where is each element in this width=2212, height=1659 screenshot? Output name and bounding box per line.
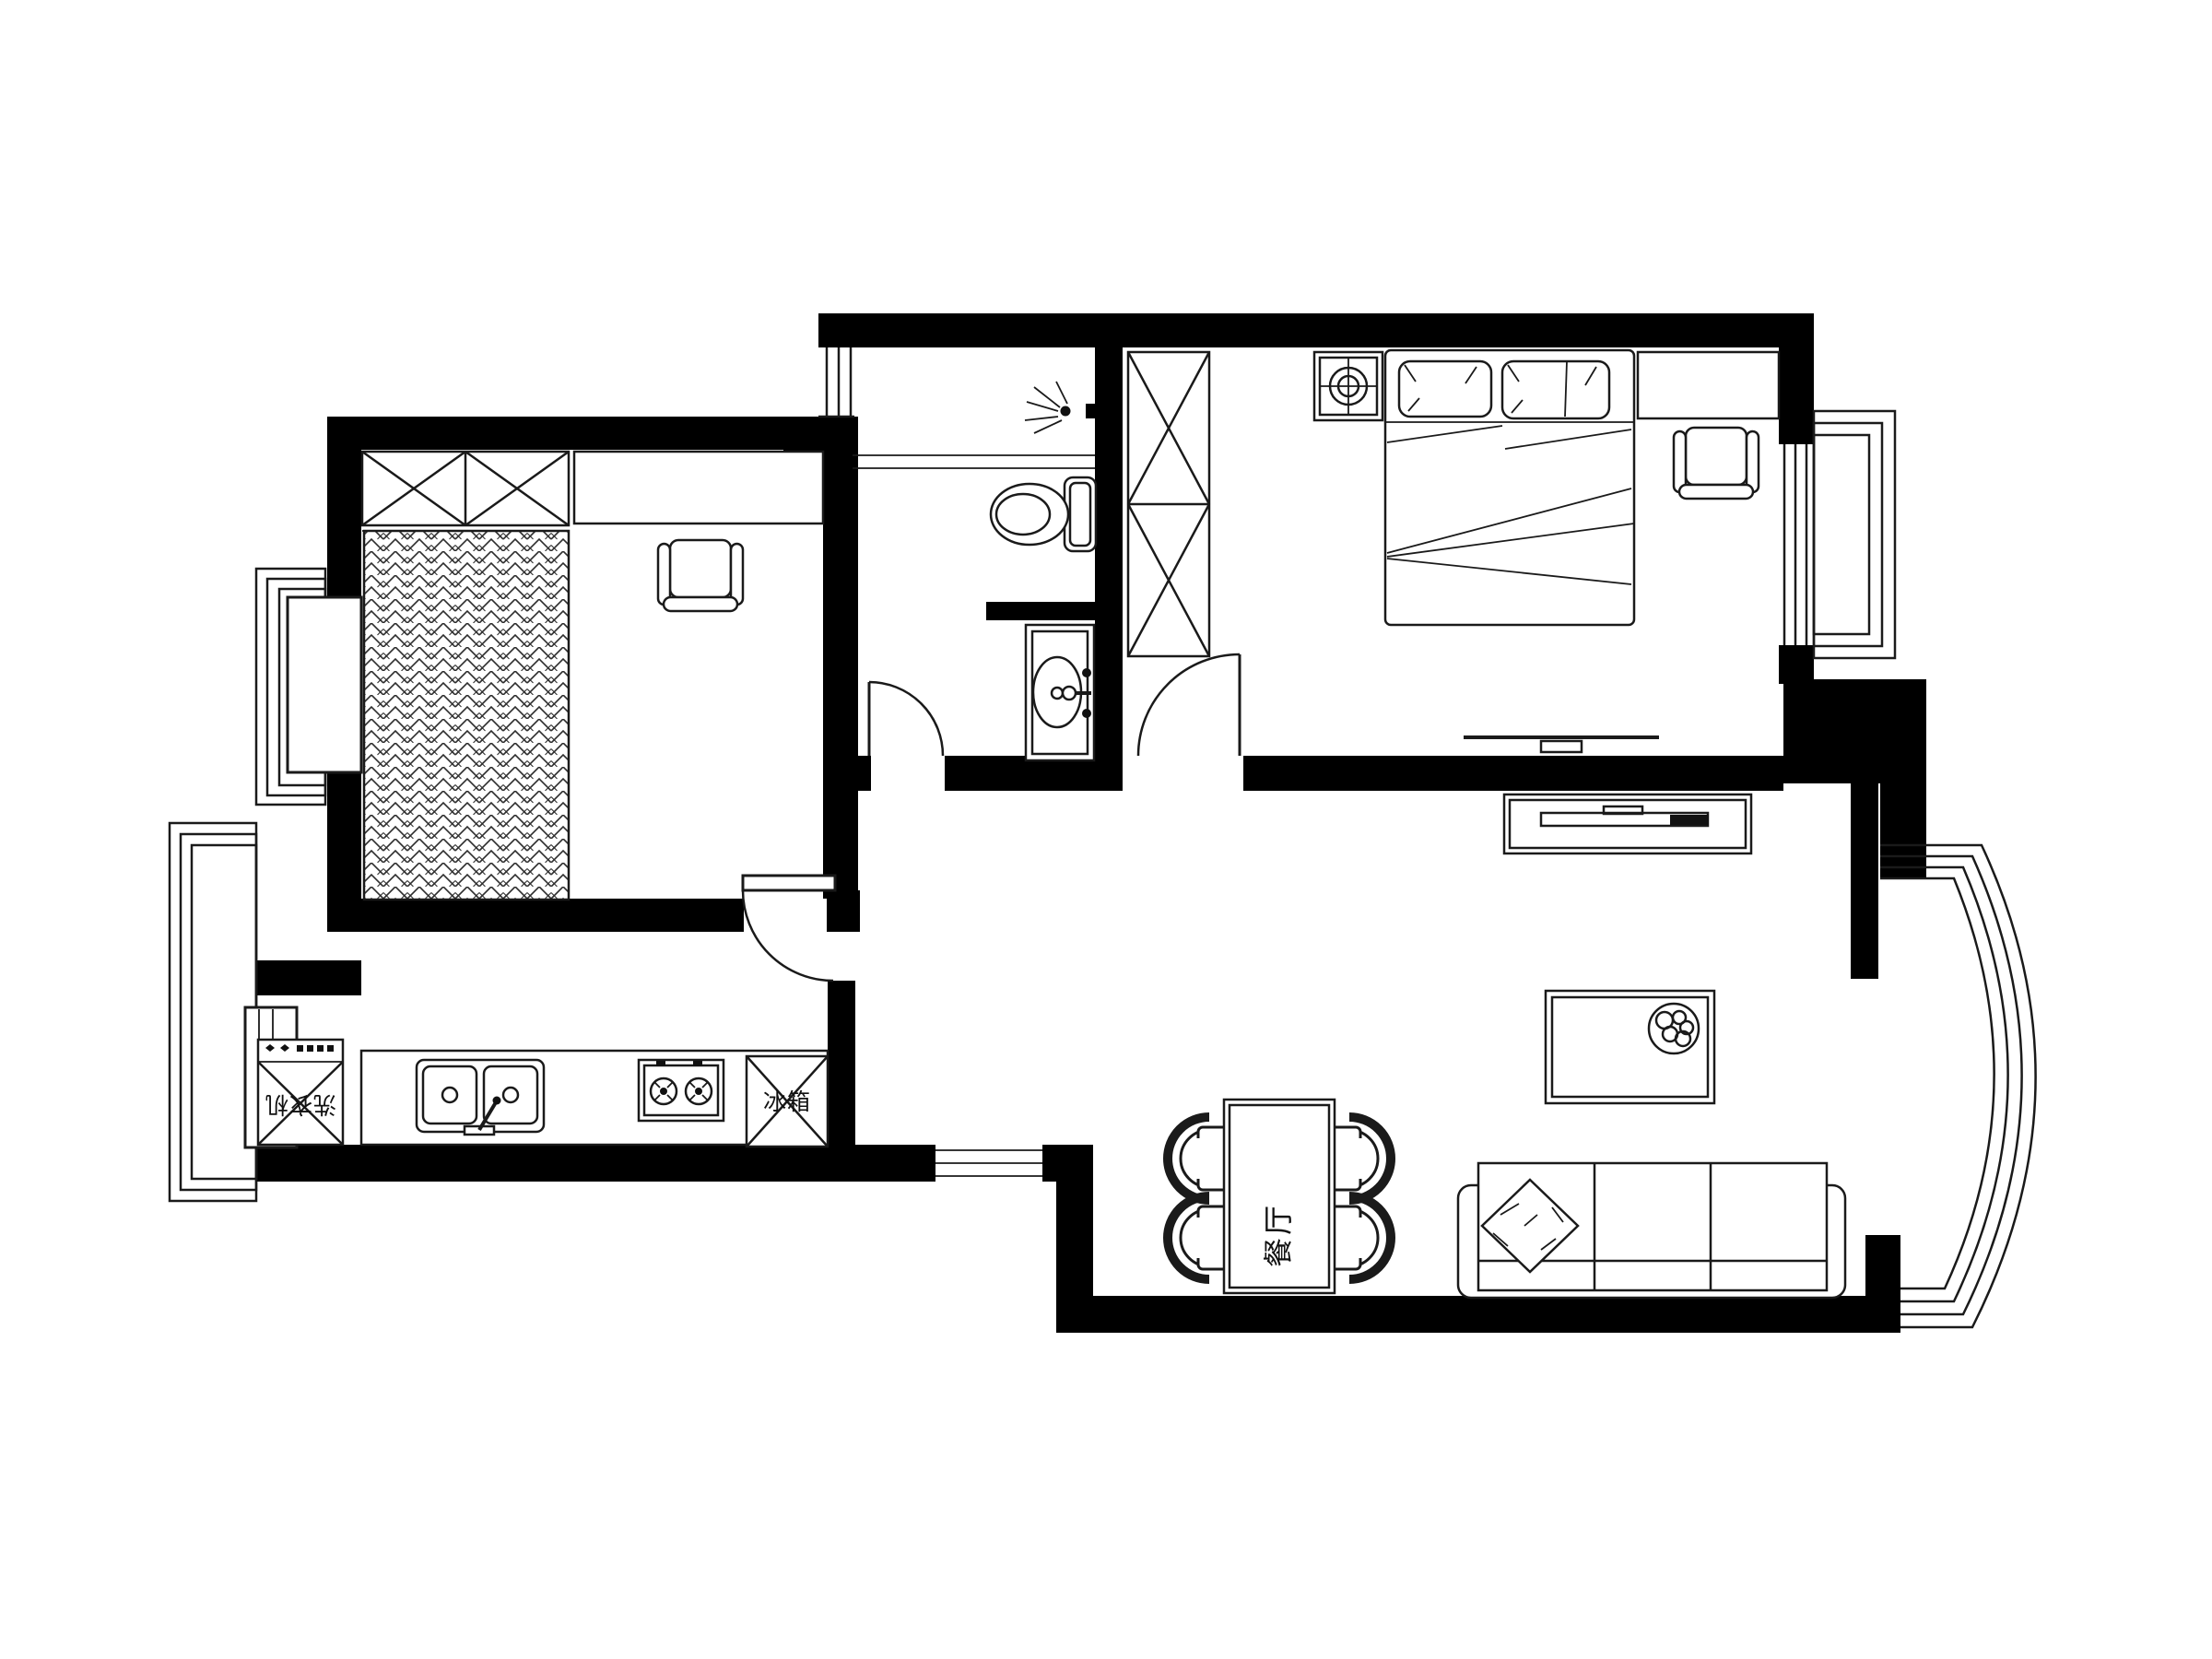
nightstand-lamp	[1314, 352, 1382, 420]
wall-room2-top	[327, 417, 858, 450]
floor-plan-drawing: 餐厅 洗衣机	[0, 0, 2212, 1659]
wall-bath-right	[1095, 347, 1123, 772]
wall-bath-bottom-left	[823, 756, 871, 791]
room2-bay-window	[256, 569, 361, 805]
wall-living-bottom	[1056, 1296, 1900, 1333]
wall-kitchen-step	[256, 960, 361, 995]
living-bay-window	[1880, 845, 2036, 1327]
room-kitchen: 洗衣机 冰箱	[258, 1040, 828, 1147]
toilet	[991, 477, 1096, 551]
wall-room2-left-upper	[327, 417, 361, 599]
wall-entry-corner	[1042, 1145, 1093, 1182]
wall-room2-bottom	[327, 899, 744, 932]
wall-master-right-lower	[1779, 645, 1814, 684]
wardrobe-master	[1128, 352, 1209, 656]
sofa	[1458, 1163, 1845, 1298]
fridge: 冰箱	[747, 1056, 828, 1147]
shower-head-icon	[1025, 382, 1097, 433]
bathroom-door	[869, 682, 943, 756]
washing-machine-label: 洗衣机	[265, 1091, 336, 1118]
wardrobe-second-bedroom	[362, 452, 569, 531]
room-second-bedroom	[362, 452, 823, 900]
wall-bath-stub	[986, 602, 1095, 620]
desk-second-bedroom	[574, 452, 823, 524]
shower-partition	[853, 455, 1095, 468]
entry-opening	[935, 1145, 1042, 1182]
kitchen-sink	[417, 1060, 544, 1135]
tatami-bed	[364, 531, 569, 900]
dining-set: 餐厅	[1168, 1100, 1391, 1293]
wall-master-bottom	[1243, 756, 1783, 791]
vanity-sink	[1026, 625, 1094, 760]
washing-machine: 洗衣机	[258, 1040, 343, 1145]
wall-tv-master	[1464, 737, 1659, 752]
gas-stove	[639, 1060, 724, 1121]
kitchen-door	[743, 876, 835, 981]
wall-master-right-upper	[1779, 313, 1814, 444]
wall-se-corner-b	[1880, 783, 1926, 877]
chair-master	[1674, 428, 1759, 499]
doors	[743, 654, 1240, 981]
wall-top	[818, 313, 1814, 347]
wall-living-right-bar	[1851, 783, 1878, 979]
floor-plan-page: 餐厅 洗衣机	[0, 0, 2212, 1659]
room-bathroom	[853, 382, 1097, 760]
wall-se-corner-a	[1783, 679, 1926, 783]
room-master-bedroom	[1128, 350, 1779, 752]
desk-master	[1638, 352, 1779, 418]
wall-kitchen-right	[828, 981, 855, 1147]
wall-room2-right	[823, 417, 858, 899]
wall-step-vertical	[1056, 1182, 1093, 1301]
master-bedroom-door	[1138, 654, 1240, 756]
bath-window	[818, 347, 854, 417]
fridge-label: 冰箱	[763, 1088, 811, 1115]
dining-room-label: 餐厅	[1261, 1203, 1296, 1267]
wall-corner-block	[827, 890, 860, 932]
wall-kitchen-bottom	[256, 1145, 935, 1182]
master-bay-window	[1784, 411, 1895, 658]
room-living-dining: 餐厅	[1168, 794, 1845, 1298]
tv-cabinet	[1504, 794, 1751, 853]
double-bed	[1385, 350, 1634, 625]
chair-second-bedroom	[658, 540, 743, 611]
wall-living-right-stub	[1865, 1235, 1900, 1333]
coffee-table	[1546, 991, 1714, 1103]
